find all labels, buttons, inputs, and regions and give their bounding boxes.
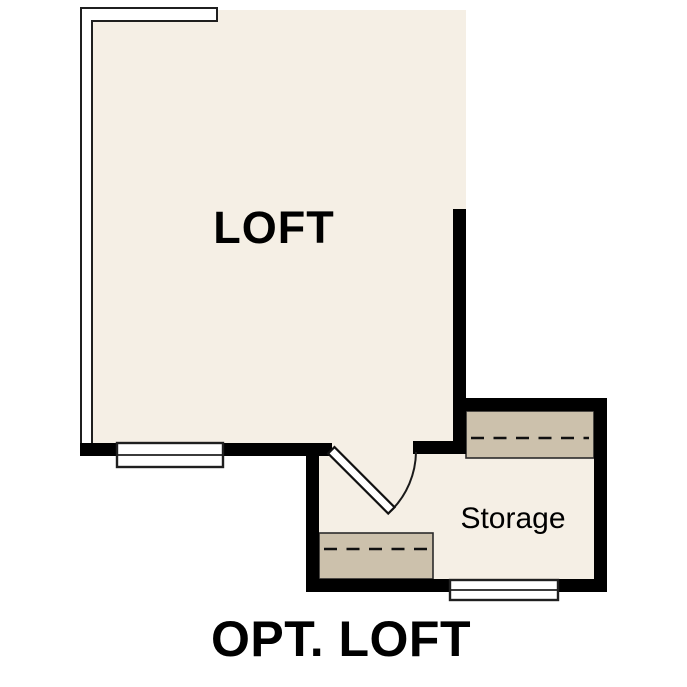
loft-room-label: LOFT <box>213 202 334 253</box>
storage-cabinet-upper <box>466 411 594 458</box>
door-stub-wall <box>413 441 455 454</box>
floor-plan: LOFT Storage OPT. LOFT <box>0 0 687 687</box>
loft-window <box>117 443 223 467</box>
storage-top-wall <box>453 398 607 411</box>
plan-caption: OPT. LOFT <box>211 611 471 667</box>
hall-left-wall <box>306 454 319 592</box>
cabinet-lower-box <box>319 533 433 579</box>
loft-right-wall <box>453 209 466 454</box>
storage-right-wall <box>594 398 607 592</box>
cabinet-upper-box <box>466 411 594 458</box>
storage-window <box>450 580 558 600</box>
storage-cabinet-lower <box>319 533 433 579</box>
storage-room-label: Storage <box>460 502 565 535</box>
floor-plan-drawing: LOFT Storage OPT. LOFT <box>0 0 687 687</box>
